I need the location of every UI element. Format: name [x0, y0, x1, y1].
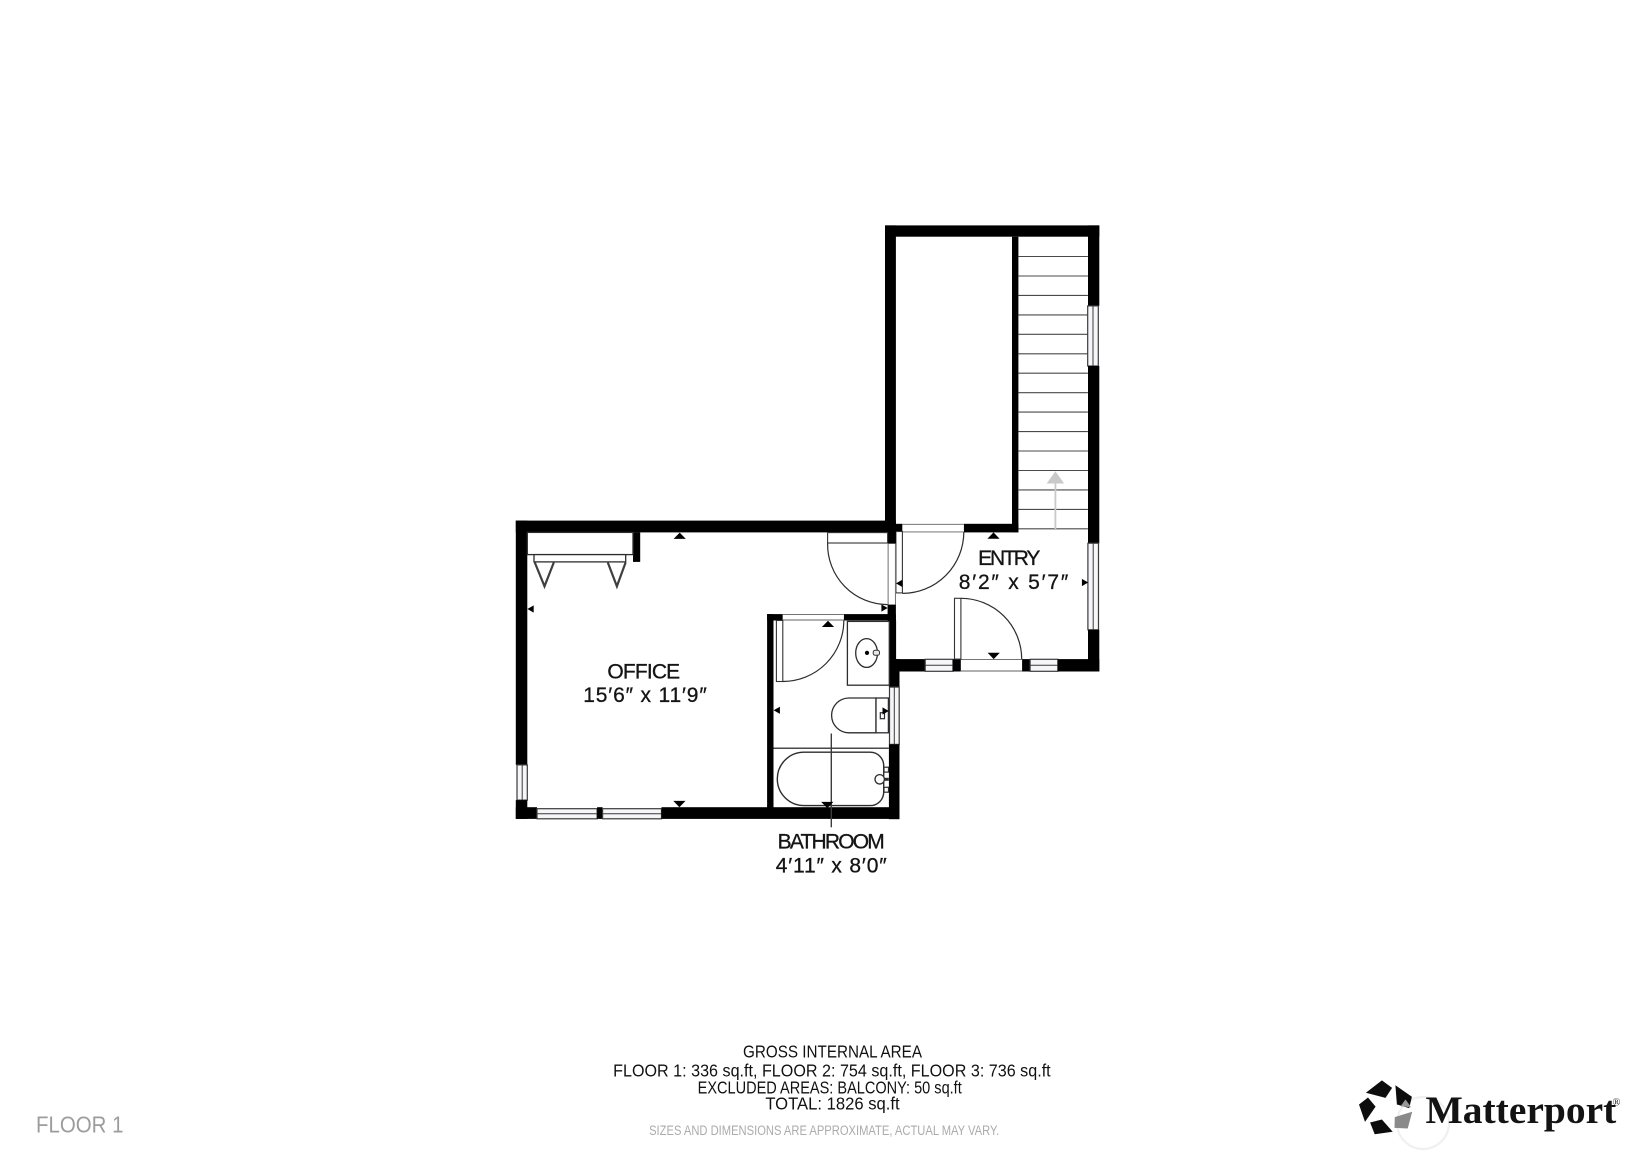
- svg-text:®: ®: [1613, 1098, 1621, 1109]
- svg-text:OFFICE: OFFICE: [607, 661, 680, 684]
- svg-text:ENTRY: ENTRY: [978, 547, 1040, 570]
- svg-text:4′11″ x 8′0″: 4′11″ x 8′0″: [776, 854, 887, 877]
- svg-text:SIZES AND DIMENSIONS ARE APPRO: SIZES AND DIMENSIONS ARE APPROXIMATE, AC…: [649, 1123, 999, 1138]
- svg-text:TOTAL: 1826 sq.ft: TOTAL: 1826 sq.ft: [765, 1094, 900, 1113]
- svg-text:GROSS INTERNAL AREA: GROSS INTERNAL AREA: [743, 1043, 922, 1062]
- svg-text:Matterport: Matterport: [1426, 1088, 1617, 1132]
- svg-text:15′6″ x 11′9″: 15′6″ x 11′9″: [583, 684, 707, 707]
- svg-text:BATHROOM: BATHROOM: [778, 831, 885, 854]
- svg-text:8′2″ x 5′7″: 8′2″ x 5′7″: [959, 571, 1069, 594]
- svg-text:FLOOR 1: FLOOR 1: [36, 1111, 123, 1138]
